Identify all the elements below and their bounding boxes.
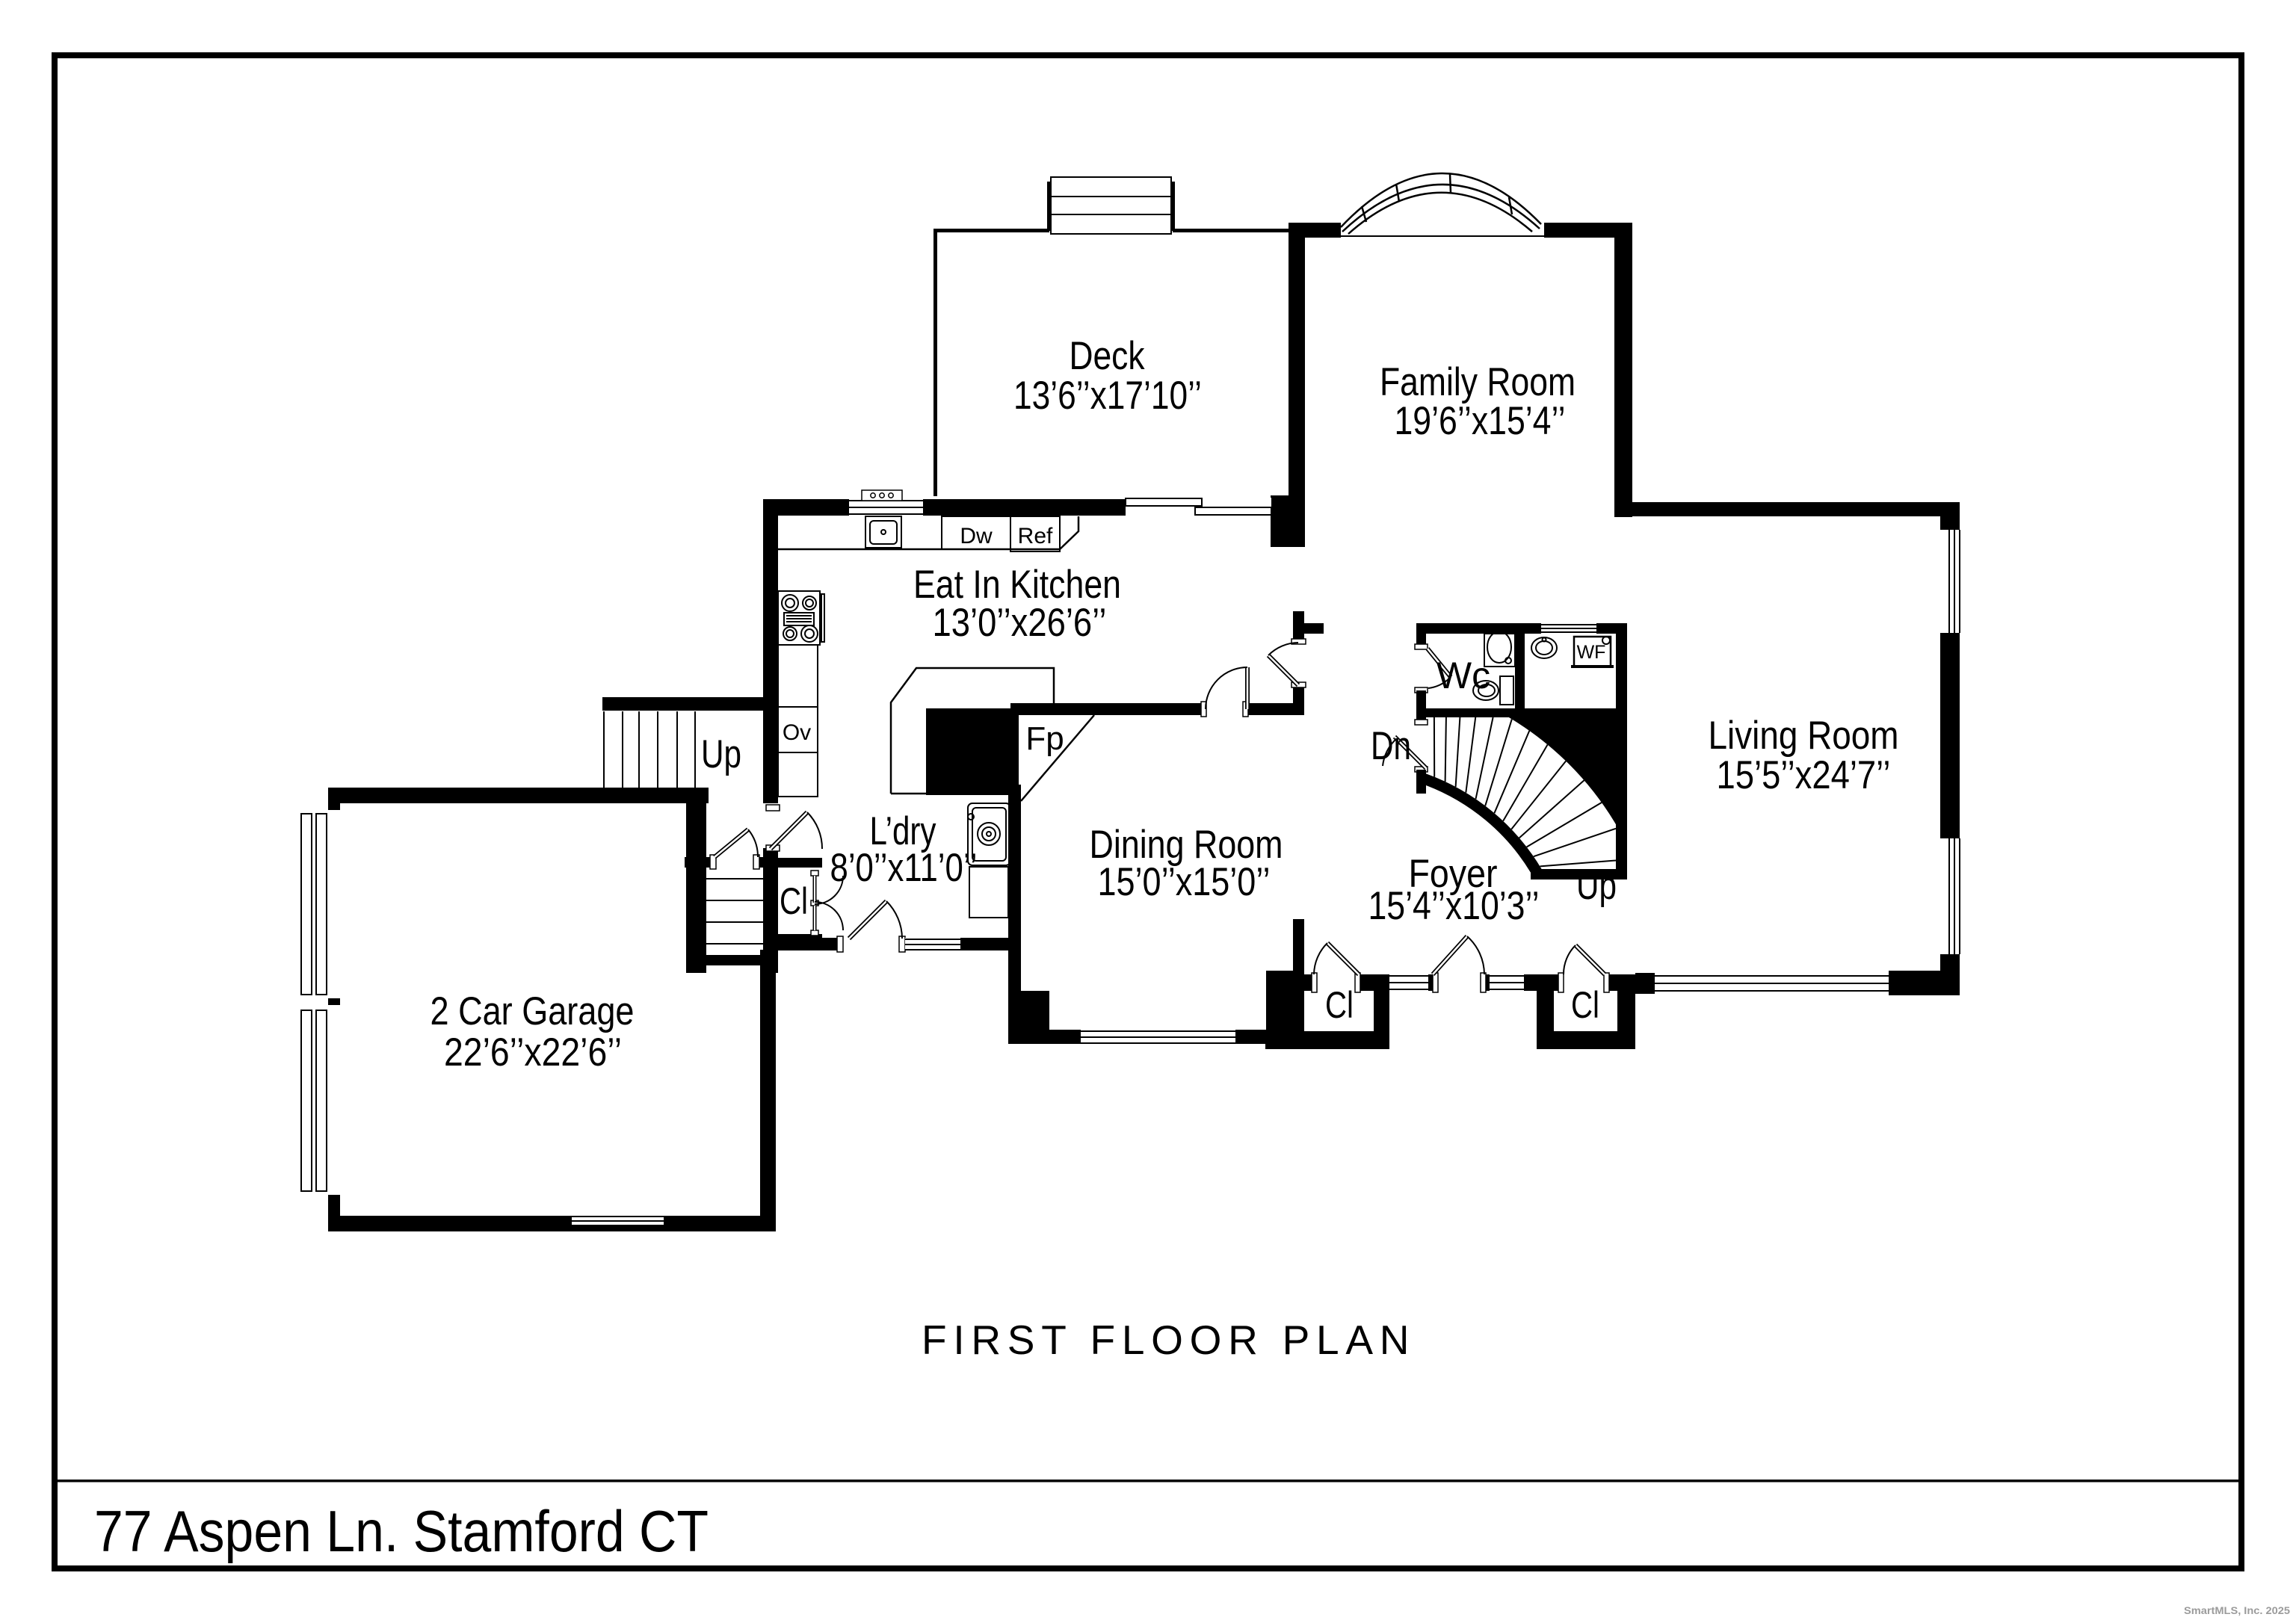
svg-text:77 Aspen Ln. Stamford CT: 77 Aspen Ln. Stamford CT (94, 1498, 709, 1564)
svg-text:19’6’’x15’4’’: 19’6’’x15’4’’ (1395, 399, 1566, 443)
svg-text:Cl: Cl (1325, 984, 1354, 1026)
svg-text:Cl: Cl (1571, 984, 1599, 1026)
svg-text:13’6’’x17’10’’: 13’6’’x17’10’’ (1013, 374, 1202, 418)
svg-text:Fp: Fp (1025, 720, 1064, 757)
svg-text:8’0’’x11’0’’: 8’0’’x11’0’’ (830, 846, 978, 890)
svg-text:Dw: Dw (960, 524, 993, 548)
svg-text:Living Room: Living Room (1709, 714, 1899, 758)
svg-text:Up: Up (1576, 864, 1617, 908)
svg-text:22’6’’x22’6’’: 22’6’’x22’6’’ (444, 1030, 622, 1075)
svg-text:13’0’’x26’6’’: 13’0’’x26’6’’ (933, 601, 1107, 645)
svg-text:SmartMLS, Inc. 2025: SmartMLS, Inc. 2025 (2184, 1605, 2291, 1616)
svg-text:Ov: Ov (783, 720, 811, 745)
svg-text:Ref: Ref (1018, 524, 1053, 548)
svg-text:Deck: Deck (1070, 334, 1145, 378)
svg-text:15’4’’x10’3’’: 15’4’’x10’3’’ (1368, 884, 1540, 928)
svg-text:Up: Up (701, 732, 741, 776)
svg-text:Dn: Dn (1371, 724, 1411, 768)
svg-text:15’5’’x24’7’’: 15’5’’x24’7’’ (1717, 753, 1891, 797)
svg-text:WF: WF (1577, 642, 1606, 663)
svg-text:2 Car Garage: 2 Car Garage (430, 989, 635, 1033)
svg-text:FIRST FLOOR PLAN: FIRST FLOOR PLAN (922, 1317, 1415, 1363)
svg-text:Family Room: Family Room (1380, 360, 1576, 404)
svg-text:15’0’’x15’0’’: 15’0’’x15’0’’ (1098, 860, 1271, 904)
svg-text:Wc: Wc (1436, 655, 1490, 696)
svg-text:Cl: Cl (780, 880, 808, 922)
